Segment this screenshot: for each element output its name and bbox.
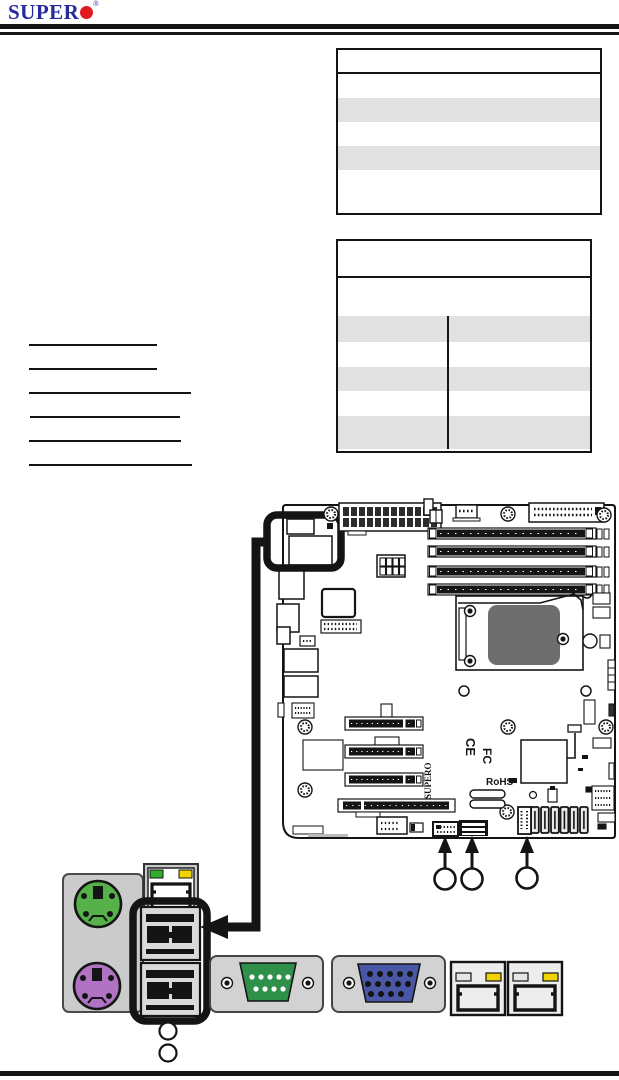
- rear-io-panel: [63, 864, 562, 1062]
- usb-port: [141, 907, 200, 960]
- table-row: [338, 122, 600, 146]
- callout-arrow: [520, 836, 534, 867]
- usb-port: [141, 963, 200, 1016]
- usb-stack: [133, 901, 207, 1021]
- toc-link-underline[interactable]: [29, 368, 157, 370]
- vga-port: [332, 956, 445, 1012]
- silkscreen-block: [509, 778, 517, 783]
- logo-text: SUPER: [8, 0, 79, 24]
- registered-mark: ®: [93, 1, 98, 8]
- ps2-mouse-port: [75, 881, 121, 927]
- callout-circle: [435, 869, 456, 890]
- cpu-8pin-power: [377, 555, 405, 577]
- motherboard-figure: SUPERO CE FC RoHS: [0, 490, 619, 1080]
- lan-port-1: [451, 962, 505, 1015]
- lan-led-yellow: [179, 870, 192, 878]
- sata-ports: [531, 807, 588, 833]
- jumper-table: [336, 239, 592, 453]
- front-usb-header: [518, 807, 531, 834]
- cpu-socket: [456, 594, 583, 670]
- toc-link-underline[interactable]: [29, 464, 192, 466]
- toc-link-underline[interactable]: [29, 440, 181, 442]
- table-row: [338, 367, 590, 391]
- serial-port: [210, 956, 323, 1012]
- ps2-keyboard-port: [74, 963, 120, 1009]
- table-row: [338, 391, 590, 416]
- spec-table-header: [338, 50, 600, 74]
- supermicro-logo: SUPER®: [8, 0, 99, 24]
- jumper-table-header: [338, 241, 590, 278]
- table-row: [338, 416, 590, 449]
- toc-link-underline[interactable]: [29, 392, 191, 394]
- tpm-pin-header: [529, 503, 604, 522]
- table-row: [338, 316, 590, 342]
- header-rule-thin: [0, 32, 619, 35]
- ce-mark: CE: [463, 738, 478, 756]
- toc-link-underline[interactable]: [29, 344, 157, 346]
- fcc-mark: FC: [480, 748, 494, 764]
- table-row: [338, 98, 600, 122]
- callout-circle: [517, 868, 538, 889]
- header-rule-thick: [0, 24, 619, 29]
- table-row: [338, 170, 600, 195]
- spec-table: [336, 48, 602, 215]
- callout-circle: [160, 1045, 177, 1062]
- table-row: [338, 146, 600, 170]
- lan-port-2: [508, 962, 562, 1015]
- pci-slots: [345, 717, 423, 786]
- callout-arrow: [465, 836, 479, 868]
- table-row: [338, 342, 590, 367]
- callout-circle: [462, 869, 483, 890]
- table-row: [338, 74, 600, 98]
- callout-circle: [160, 1023, 177, 1040]
- table-row: [338, 278, 590, 316]
- callout-arrow: [438, 836, 452, 868]
- lan-port-top: [144, 864, 198, 913]
- board-callouts: [435, 836, 538, 890]
- toc-link-underline[interactable]: [30, 416, 180, 418]
- lan-led-green: [150, 870, 163, 878]
- footer-rule: [0, 1071, 619, 1076]
- elbow-arrow: [200, 542, 268, 939]
- motherboard-diagram: SUPERO CE FC RoHS: [267, 499, 615, 838]
- board-brand-text: SUPERO: [423, 762, 433, 799]
- logo-red-dot-icon: [80, 6, 93, 19]
